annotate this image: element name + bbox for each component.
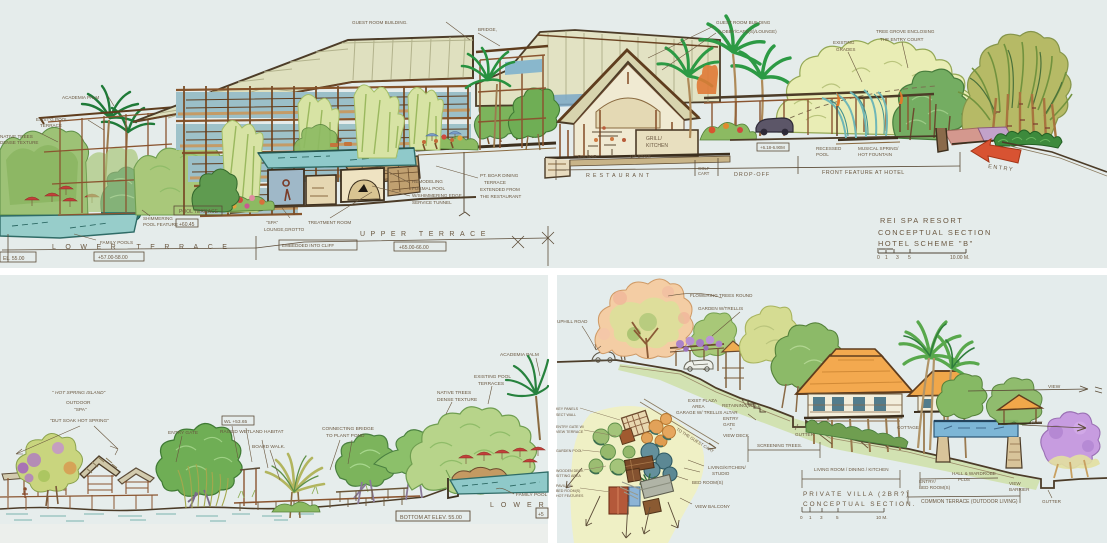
svg-text:SHIMMERING: SHIMMERING: [143, 216, 173, 221]
svg-text:ENTRY/: ENTRY/: [919, 479, 936, 484]
svg-text:CART: CART: [698, 171, 710, 176]
svg-text:OUTDOOR: OUTDOOR: [66, 400, 91, 406]
svg-text:TERRACE: TERRACE: [40, 123, 62, 128]
svg-text:WL +53.65: WL +53.65: [224, 419, 247, 425]
svg-text:RAISED WETLAND HABITAT: RAISED WETLAND HABITAT: [220, 429, 284, 435]
svg-text:TERRACE: TERRACE: [484, 180, 506, 185]
svg-text:DENSE TEXTURE: DENSE TEXTURE: [437, 397, 477, 403]
svg-text:" HOT SPRING ISLAND": " HOT SPRING ISLAND": [52, 390, 106, 396]
svg-text:RETAINING WALL: RETAINING WALL: [722, 403, 761, 408]
svg-text:VIEW: VIEW: [1030, 420, 1043, 426]
svg-text:HALL & WARDROBE: HALL & WARDROBE: [952, 471, 996, 476]
svg-text:POOL: POOL: [816, 152, 829, 157]
svg-text:EL. 55.00: EL. 55.00: [3, 256, 25, 262]
svg-text:+5: +5: [538, 512, 544, 518]
svg-text:VIEW DECK: VIEW DECK: [723, 433, 750, 438]
svg-text:GUEST ROOM BUILDING.: GUEST ROOM BUILDING.: [352, 20, 408, 25]
svg-text:KITCHEN: KITCHEN: [646, 143, 668, 149]
svg-text:GARDEN W/TRELLIS: GARDEN W/TRELLIS: [698, 306, 743, 311]
svg-text:1: 1: [885, 255, 888, 261]
svg-text:COTTAGE: COTTAGE: [897, 425, 919, 430]
svg-text:+65.00-66.00: +65.00-66.00: [399, 245, 429, 251]
svg-text:CONCEPTUAL SECTION: CONCEPTUAL SECTION: [878, 228, 992, 237]
svg-text:10.00 M.: 10.00 M.: [950, 255, 969, 261]
svg-text:FRONT FEATURE AT HOTEL: FRONT FEATURE AT HOTEL: [822, 170, 905, 176]
svg-text:BRIDGE,: BRIDGE,: [478, 27, 497, 32]
svg-text:LOWER TERRACE: LOWER TERRACE: [52, 244, 236, 251]
svg-text:RECESSED: RECESSED: [816, 146, 842, 151]
svg-text:GUEST ROOM BUILDING: GUEST ROOM BUILDING: [716, 20, 771, 25]
svg-text:HOT FOUNTAIN: HOT FOUNTAIN: [858, 152, 892, 157]
svg-text:VIEW: VIEW: [1009, 481, 1021, 486]
svg-text:"SPA": "SPA": [266, 220, 278, 225]
svg-text:HOT FEATURES: HOT FEATURES: [556, 494, 584, 498]
svg-text:0: 0: [800, 515, 803, 520]
svg-text:GRADES: GRADES: [836, 47, 855, 52]
svg-text:EXTENDED FROM: EXTENDED FROM: [480, 187, 520, 192]
svg-text:UPPER TERRACE: UPPER TERRACE: [360, 231, 491, 238]
svg-text:"DUT SOAK HOT SPRING": "DUT SOAK HOT SPRING": [50, 418, 109, 424]
svg-text:+57.00-58.00: +57.00-58.00: [98, 255, 128, 261]
svg-text:ENTRY GATE W/: ENTRY GATE W/: [556, 425, 584, 429]
svg-text:PRIVATE VILLA (2BR?): PRIVATE VILLA (2BR?): [803, 491, 910, 498]
svg-text:LOUNGE,GROTTO: LOUNGE,GROTTO: [264, 227, 305, 232]
svg-text:THE ENTRY COURT: THE ENTRY COURT: [880, 37, 924, 42]
svg-text:SECT WALL: SECT WALL: [556, 413, 576, 417]
svg-text:UP STAIR: UP STAIR: [630, 154, 651, 159]
svg-text:+6.18-6.90M: +6.18-6.90M: [760, 145, 785, 150]
svg-text:POOL FEATURE: POOL FEATURE: [143, 222, 178, 227]
svg-text:EMBEDDED INTO CLIFF: EMBEDDED INTO CLIFF: [282, 243, 334, 248]
svg-text:PLUS: PLUS: [958, 477, 970, 482]
svg-text:1: 1: [809, 515, 812, 520]
svg-text:LIVING ROOM / DINING / KITCHEN: LIVING ROOM / DINING / KITCHEN: [814, 467, 889, 472]
svg-text:EXIST PLAZA: EXIST PLAZA: [688, 398, 718, 403]
svg-text:BOTTOM AT ELEV. 55.00: BOTTOM AT ELEV. 55.00: [400, 515, 462, 521]
svg-text:MUSICAL SPRING/: MUSICAL SPRING/: [858, 146, 899, 151]
svg-text:EXISTING: EXISTING: [833, 40, 855, 45]
svg-text:FORMAL POOL: FORMAL POOL: [412, 186, 445, 191]
svg-text:THE RESTAURANT: THE RESTAURANT: [480, 194, 521, 199]
svg-text:PAVILION: PAVILION: [556, 484, 572, 488]
svg-text:3: 3: [820, 515, 823, 520]
svg-text:NATIVE TREES: NATIVE TREES: [0, 134, 33, 139]
svg-text:GUTTER: GUTTER: [1042, 499, 1062, 504]
svg-text:DROP-OFF: DROP-OFF: [734, 172, 770, 178]
svg-text:GARAGE W/ TRELLIS ALTAR: GARAGE W/ TRELLIS ALTAR: [676, 410, 738, 415]
svg-text:EXISTING POOL: EXISTING POOL: [474, 374, 511, 380]
svg-text:GRILL/: GRILL/: [646, 136, 662, 142]
svg-text:W/SHIMMERING EDGE: W/SHIMMERING EDGE: [412, 193, 462, 198]
svg-text:REMODELING: REMODELING: [412, 179, 443, 184]
svg-text:ACADEMIA PALM: ACADEMIA PALM: [500, 352, 539, 358]
svg-text:HOTEL SCHEME "B": HOTEL SCHEME "B": [878, 239, 974, 248]
svg-text:VIEW: VIEW: [1048, 384, 1061, 390]
svg-text:BED ROOM(S): BED ROOM(S): [919, 485, 951, 490]
svg-text:SCREENING TREES.: SCREENING TREES.: [757, 443, 802, 448]
svg-text:VIEW TERRACE: VIEW TERRACE: [556, 430, 584, 434]
svg-text:ACADEMIA PALM: ACADEMIA PALM: [62, 95, 99, 100]
svg-text:3: 3: [896, 255, 899, 261]
svg-text:BARRIER: BARRIER: [1009, 487, 1030, 492]
svg-text:POOL TERRACE: POOL TERRACE: [179, 209, 219, 215]
svg-text:TREATMENT ROOM: TREATMENT ROOM: [308, 220, 351, 225]
svg-text:GUTTER: GUTTER: [795, 432, 815, 437]
svg-text:BED ROOM(S): BED ROOM(S): [692, 480, 724, 485]
svg-text:TREE GROVE ENCLOSING: TREE GROVE ENCLOSING: [876, 29, 935, 34]
svg-text:ENTRY GATE: ENTRY GATE: [168, 430, 198, 436]
svg-text:+60.45: +60.45: [179, 222, 195, 228]
svg-text:DN. BAR: DN. BAR: [578, 154, 597, 159]
svg-text:VIEW BALCONY: VIEW BALCONY: [695, 504, 730, 509]
svg-text:NATIVE TREES: NATIVE TREES: [437, 390, 471, 396]
svg-text:5: 5: [836, 515, 839, 520]
svg-text:WOODEN DECK: WOODEN DECK: [556, 469, 584, 473]
svg-text:AREA: AREA: [692, 404, 705, 409]
svg-text:TO PLANT POND: TO PLANT POND: [326, 433, 365, 439]
svg-text:GARDEN POOL: GARDEN POOL: [556, 449, 582, 453]
svg-text:FAMILY POOL: FAMILY POOL: [516, 492, 548, 498]
svg-text:CONCEPTUAL SECTION.: CONCEPTUAL SECTION.: [803, 501, 916, 508]
svg-text:*: *: [730, 427, 732, 432]
svg-text:"SPA": "SPA": [74, 407, 87, 413]
svg-text:TERRACES: TERRACES: [478, 381, 504, 387]
svg-text:BOARD WALK.: BOARD WALK.: [252, 444, 285, 450]
svg-text:PT. BOAR DINING: PT. BOAR DINING: [480, 173, 519, 178]
svg-text:0: 0: [877, 255, 880, 261]
svg-text:RESTAURANT: RESTAURANT: [586, 173, 652, 179]
svg-text:STUDIO: STUDIO: [712, 471, 730, 476]
svg-text:CONNECTING BRIDGE: CONNECTING BRIDGE: [322, 426, 374, 432]
svg-text:SITTING AREA: SITTING AREA: [556, 474, 581, 478]
svg-text:BED ROOM(S): BED ROOM(S): [556, 489, 580, 493]
svg-text:DENSE TEXTURE: DENSE TEXTURE: [0, 140, 38, 145]
svg-text:KEY PANELS: KEY PANELS: [556, 407, 579, 411]
svg-text:UPHILL ROAD: UPHILL ROAD: [557, 319, 588, 324]
svg-text:10 M.: 10 M.: [876, 515, 888, 520]
svg-text:(LOBBY/CAFE(S)/LOUNGE): (LOBBY/CAFE(S)/LOUNGE): [718, 29, 777, 34]
svg-text:LIVING/KITCHEN/: LIVING/KITCHEN/: [708, 465, 747, 470]
svg-text:COMMON TERRACE (OUTDOOR LIVING: COMMON TERRACE (OUTDOOR LIVING): [921, 499, 1018, 505]
svg-text:SERVICE TUNNEL: SERVICE TUNNEL: [412, 200, 452, 205]
svg-text:REI SPA RESORT: REI SPA RESORT: [880, 216, 963, 225]
svg-text:5: 5: [908, 255, 911, 261]
svg-text:EXIST'G POOL: EXIST'G POOL: [36, 117, 68, 122]
svg-text:ENTRY: ENTRY: [723, 416, 739, 421]
